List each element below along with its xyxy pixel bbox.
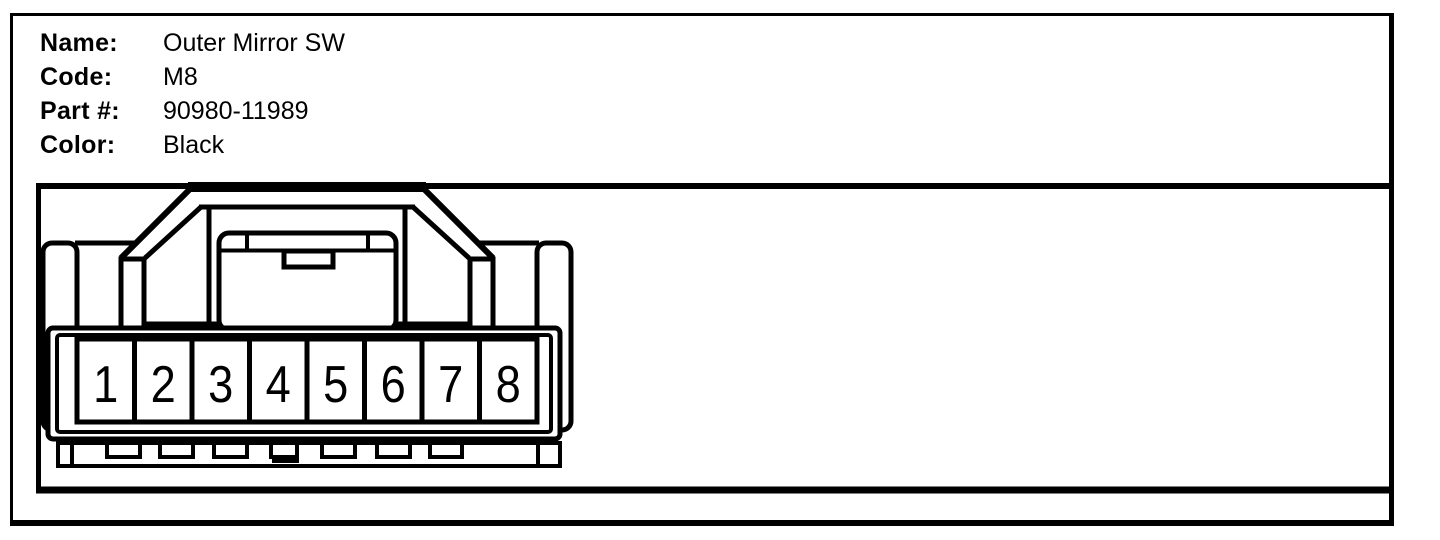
bottom-strip: [58, 443, 560, 466]
pin-cell-4: 4: [250, 339, 308, 422]
connector-diagram: 1 2 3 4 5 6 7: [0, 0, 1440, 540]
pin-number-3: 3: [208, 356, 233, 414]
connector-drawing: 1 2 3 4 5 6 7: [36, 184, 1391, 490]
pin-cell-8: 8: [480, 339, 538, 422]
pin-number-4: 4: [266, 356, 291, 414]
pin-cell-5: 5: [307, 339, 365, 422]
right-latch-post: [470, 259, 493, 332]
pin-cell-1: 1: [77, 339, 135, 422]
pin-number-6: 6: [381, 356, 406, 414]
latch-tab: [284, 251, 333, 267]
left-latch-post: [121, 259, 144, 332]
pin-number-2: 2: [151, 356, 176, 414]
pin-cell-2: 2: [135, 339, 193, 422]
hood-inner-left-diagonal: [145, 207, 201, 258]
pin-row: 1 2 3 4 5 6 7: [77, 339, 537, 422]
pin-cell-7: 7: [422, 339, 480, 422]
pin-number-1: 1: [93, 356, 118, 414]
pin-cell-6: 6: [365, 339, 423, 422]
pin-number-7: 7: [438, 356, 463, 414]
pin-number-8: 8: [496, 356, 521, 414]
pin-number-5: 5: [323, 356, 348, 414]
pin-cell-3: 3: [192, 339, 250, 422]
hood-inner-right-diagonal: [413, 207, 469, 258]
